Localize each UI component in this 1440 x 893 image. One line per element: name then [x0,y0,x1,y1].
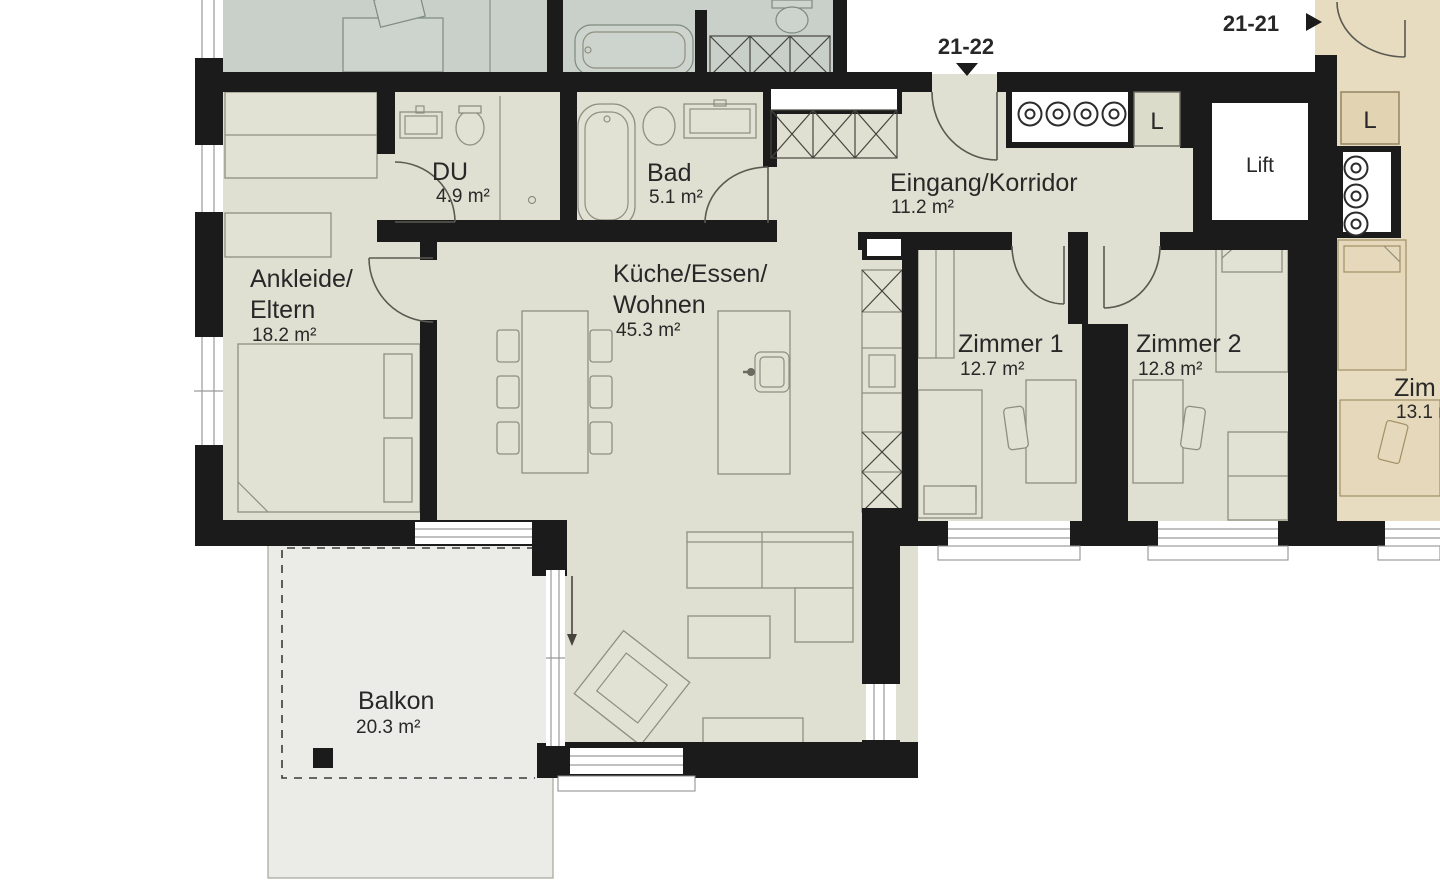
coffee-table [688,616,770,658]
room-label-ankleide-line2: Eltern [250,296,315,324]
room-label-bad: Bad [647,159,691,187]
room-label-ankleide-line1: Ankleide/ [250,265,353,293]
coat-hooks-icon [1345,157,1368,236]
pillow [1344,246,1400,272]
unit-label-current: 21-22 [938,34,994,59]
room-area-zimmer2: 12.8 m² [1138,359,1202,380]
room-label-balkon: Balkon [358,687,434,715]
balcony-pillar [313,748,333,768]
toilet-tank [459,106,481,113]
dresser [225,213,331,257]
entry-niche-main: L [1006,86,1180,148]
room-label-zimmer2: Zimmer 2 [1136,330,1242,358]
room-label-du: DU [432,158,468,186]
pillow [384,438,412,502]
room-area-bad: 5.1 m² [649,187,703,208]
room-area-kueche: 45.3 m² [616,320,680,341]
desk [1026,380,1076,483]
lift: Lift [1193,86,1327,236]
window-sill [1148,546,1288,560]
kitchen-wall-niche [862,234,906,260]
lift-label: Lift [1246,154,1274,177]
adjacent-unit-door-floor [1315,0,1340,60]
desk [1133,380,1183,483]
bad-washbasin [643,107,675,145]
tv-board [703,718,803,746]
floorplan-canvas: Lift L L [0,0,1440,893]
room-label-kueche-line2: Wohnen [613,291,706,319]
window-sill [938,546,1080,560]
neighbor-toilet [776,7,808,33]
unit-markers: 21-22 21-21 [938,11,1322,76]
sofa [687,532,853,588]
neighbor-desk [343,18,443,72]
window-sill [558,776,695,791]
unit-label-adjacent: 21-21 [1223,11,1279,36]
room-area-balkon: 20.3 m² [356,717,420,738]
tall-cabinet-column [862,270,902,512]
room-label-zimmer1: Zimmer 1 [958,330,1064,358]
pillow [384,354,412,418]
room-area-ankleide: 18.2 m² [252,325,316,346]
room-label-kueche-line1: Küche/Essen/ [613,260,767,288]
floorplan-page: Lift L L [0,0,1440,893]
room-label-adjacent-clipped: Zim [1394,374,1436,402]
room-area-zimmer1: 12.7 m² [960,359,1024,380]
entrance-opening-floor [932,74,997,94]
toilet [456,111,484,145]
entry-niche-adjacent: L [1337,92,1401,238]
window-sill [1378,546,1440,560]
dining-table [522,311,588,473]
shaft-label-adjacent: L [1363,107,1376,134]
shaft-label-main: L [1150,108,1163,135]
sofa-chaise [795,588,853,642]
room-label-eingang: Eingang/Korridor [890,169,1078,197]
room-area-eingang: 11.2 m² [891,197,954,218]
room-area-adjacent-clipped: 13.1 m [1396,402,1440,423]
room-area-du: 4.9 m² [436,186,490,207]
pillow [924,486,976,514]
